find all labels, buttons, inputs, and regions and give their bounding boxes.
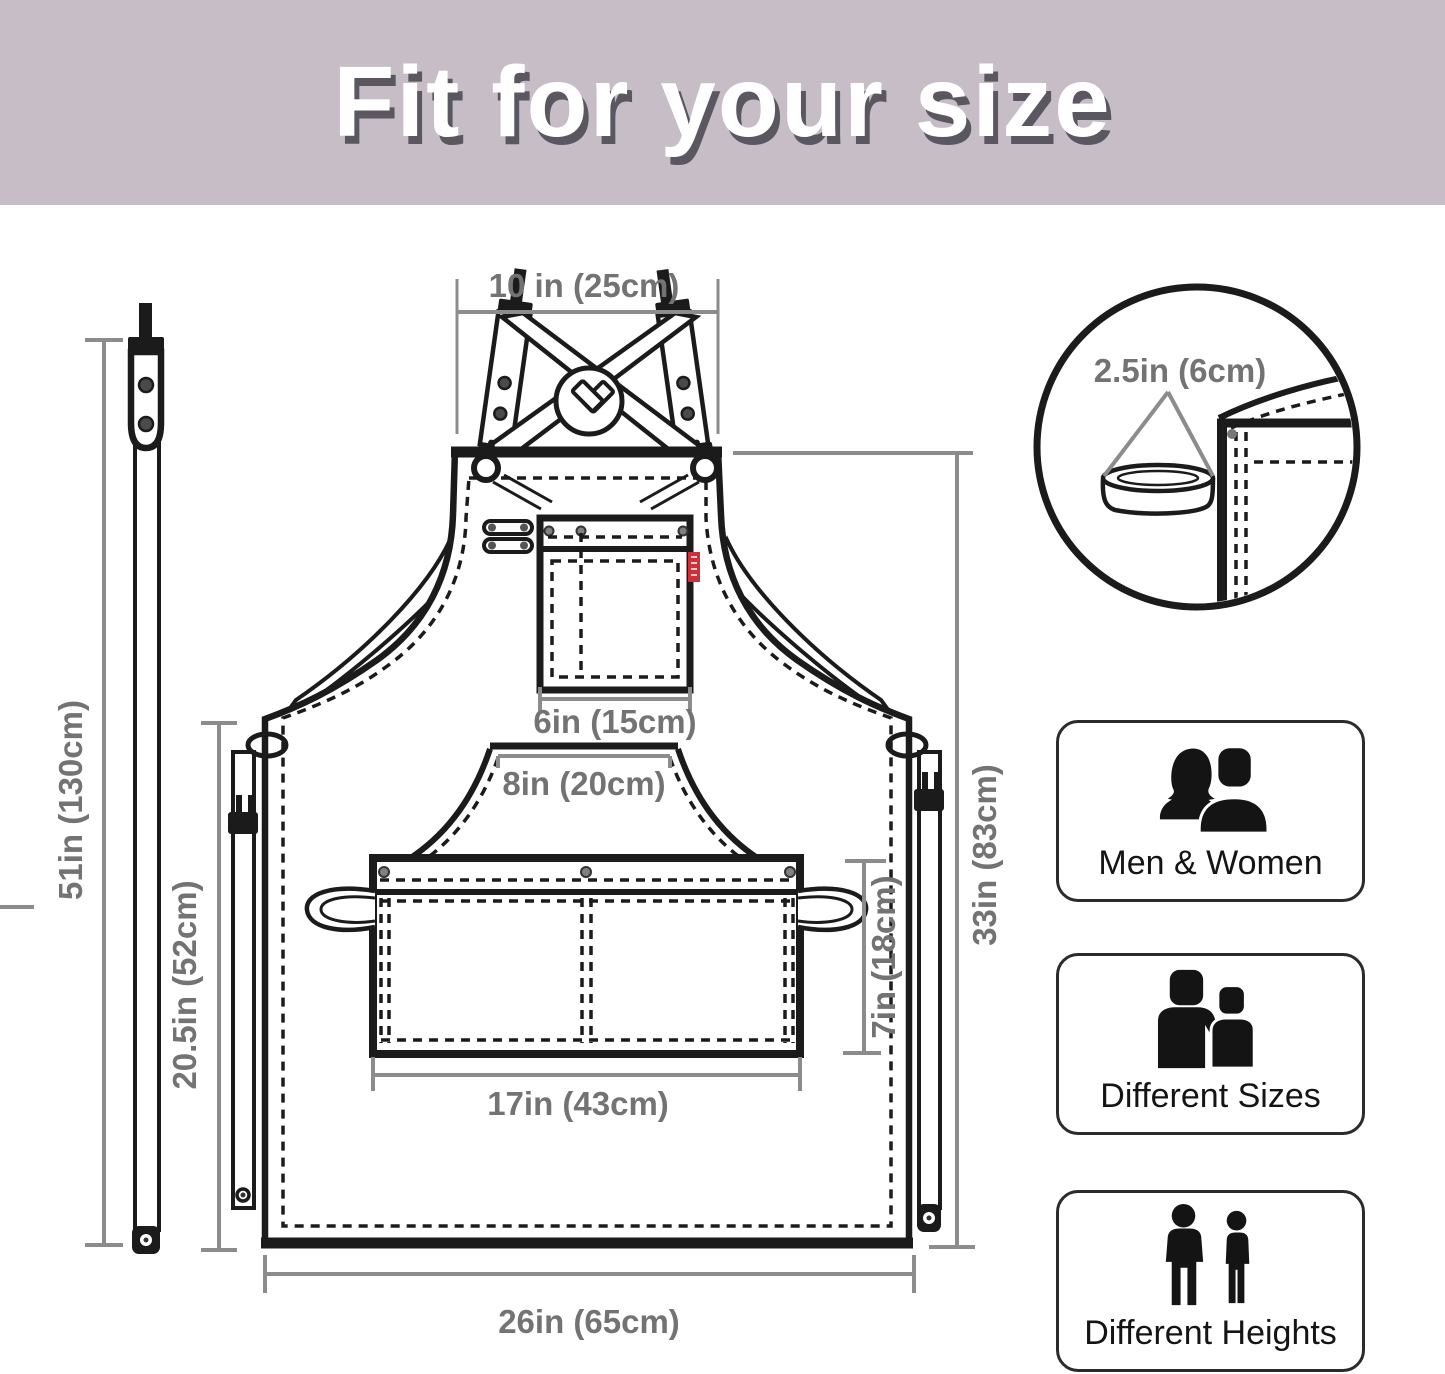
chest-pocket-label: 6in (15cm)	[533, 703, 696, 740]
bib-grommet	[693, 456, 717, 480]
different-heights-icon	[1136, 1203, 1286, 1311]
side-length-label: 20.5in (52cm)	[166, 880, 203, 1089]
front-pocket	[307, 858, 866, 1054]
towel-loop-width-label: 2.5in (6cm)	[1094, 352, 1266, 389]
front-pocket-width-label: 17in (43cm)	[487, 1085, 669, 1122]
neck-strap-width-label: 10 in (25cm)	[489, 267, 680, 304]
neck-strap-flat	[128, 303, 164, 1254]
towel-loop-detail-circle: 2.5in (6cm)	[1037, 287, 1357, 607]
strap-rivet	[139, 417, 153, 431]
apron-size-diagram: 51in (130cm) 20.5in (52cm)	[0, 0, 1445, 1374]
bottom-width-label: 26in (65cm)	[498, 1303, 680, 1340]
feature-box-different-sizes: Different Sizes	[1056, 953, 1365, 1135]
apron-length-label: 33in (83cm)	[966, 764, 1003, 946]
strap-buckle	[914, 789, 944, 811]
feature-label: Men & Women	[1059, 844, 1362, 883]
different-sizes-icon	[1136, 966, 1286, 1074]
feature-label: Different Heights	[1059, 1314, 1362, 1353]
towel-loop	[307, 889, 375, 930]
feature-box-different-heights: Different Heights	[1056, 1190, 1365, 1372]
strap-length-label: 51in (130cm)	[52, 700, 89, 900]
towel-loop	[798, 889, 866, 930]
feature-box-men-women: Men & Women	[1056, 720, 1365, 902]
front-pocket-height-label: 7in (18cm)	[865, 875, 902, 1038]
strap-buckle	[228, 812, 258, 834]
strap-rivet	[139, 378, 153, 392]
men-women-icon	[1136, 733, 1286, 841]
infographic: Fit for your size 51in (130cm) 20	[0, 0, 1445, 1374]
left-waist-tie	[228, 752, 258, 1208]
bib-grommet	[474, 456, 498, 480]
waist-panel-label: 8in (20cm)	[502, 765, 665, 802]
dimension-strap-length: 51in (130cm)	[52, 340, 123, 1245]
dimension-bottom-width: 26in (65cm)	[265, 1255, 914, 1340]
dimension-side-length: 20.5in (52cm)	[166, 723, 237, 1250]
right-waist-tie	[914, 752, 944, 1232]
feature-label: Different Sizes	[1059, 1077, 1362, 1116]
